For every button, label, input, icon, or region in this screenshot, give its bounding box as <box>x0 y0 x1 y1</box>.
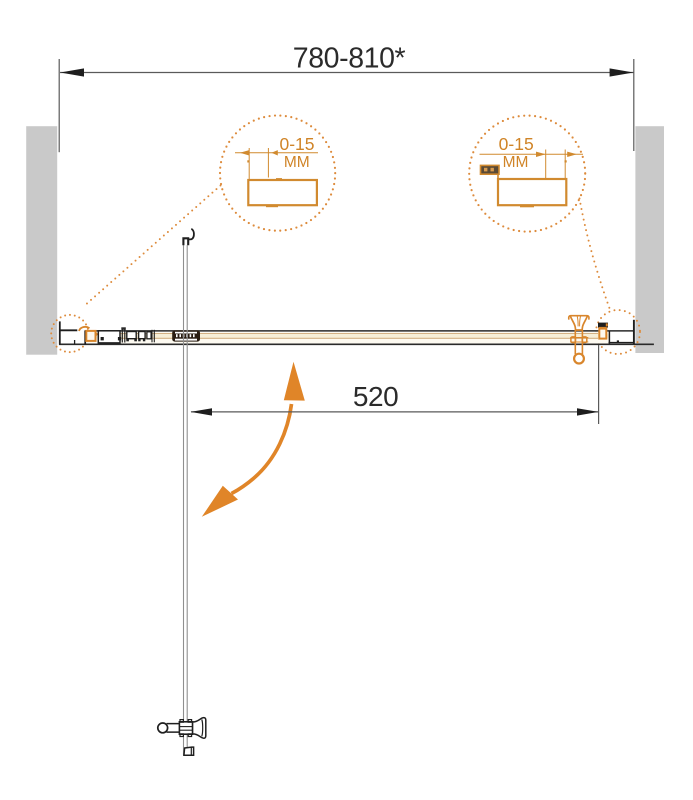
svg-text:0-15: 0-15 <box>499 134 534 154</box>
svg-text:ММ: ММ <box>284 154 310 171</box>
svg-text:ММ: ММ <box>503 154 529 171</box>
svg-text:0-15: 0-15 <box>279 134 314 154</box>
svg-text:780-810*: 780-810* <box>293 43 406 75</box>
svg-text:520: 520 <box>353 381 399 412</box>
